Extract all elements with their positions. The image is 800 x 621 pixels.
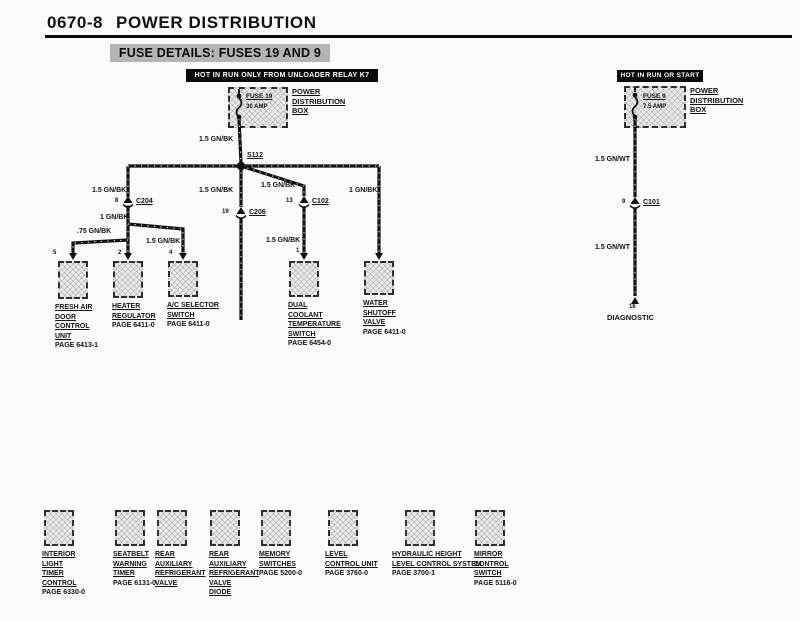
wire-label: 1.5 GN/WT (595, 156, 630, 164)
connector-label-c102: C102 (312, 198, 329, 206)
wire-label: .75 GN/BK (77, 228, 111, 236)
connector-pin-c206: 19 (222, 209, 229, 216)
rear-auxiliary-refrigerant-valve-diode-label: REARAUXILIARYREFRIGERANTVALVEDIODE (209, 550, 260, 598)
interior-light-timer-control-box (44, 510, 74, 546)
component-label-line: REAR (209, 550, 260, 560)
component-label-line: MIRROR (474, 550, 800, 560)
connector-pin-c102: 13 (286, 198, 293, 205)
wire-label: 1.5 GN/BK (261, 182, 295, 190)
wire-label: 1 GN/BK (349, 187, 377, 195)
wire-label: 1.5 GN/BK (266, 237, 300, 245)
rear-auxiliary-refrigerant-valve-label: REARAUXILIARYREFRIGERANTVALVE (155, 550, 206, 588)
component-label-line: REFRIGERANT (209, 569, 260, 579)
dual-coolant-temperature-switch-box (289, 261, 319, 297)
connector-label-c101: C101 (643, 199, 660, 207)
heater-regulator-box (113, 261, 143, 298)
wire-label: 1 GN/BK (100, 214, 128, 222)
component-label-line: SWITCH (474, 569, 800, 579)
component-label-line: SHUTOFF (363, 309, 800, 319)
wire-label: 1.5 GN/WT (595, 244, 630, 252)
component-label-line: AUXILIARY (155, 560, 206, 570)
rear-auxiliary-refrigerant-valve-diode-box (210, 510, 240, 546)
pin-number: 2 (118, 250, 121, 257)
pin-number: 4 (169, 250, 172, 257)
junction-label-s112: S112 (247, 152, 263, 160)
component-label-line: CONTROL (474, 560, 800, 570)
wire-label: 1.5 GN/BK (199, 136, 233, 144)
component-label-line: VALVE (363, 318, 800, 328)
wiring-diagram-page: 0670-8 POWER DISTRIBUTION FUSE DETAILS: … (0, 0, 800, 621)
hydraulic-height-level-control-system-box (405, 510, 435, 546)
connector-label-c206: C206 (249, 209, 266, 217)
component-label-line: AUXILIARY (209, 560, 260, 570)
mirror-control-switch-label: MIRRORCONTROLSWITCHPAGE 5116-0 (474, 550, 800, 621)
component-label-line: VALVE (155, 579, 206, 589)
seatbelt-warning-timer-box (115, 510, 145, 546)
connector-pin-c101: 9 (622, 199, 625, 206)
wire-label: 1.5 GN/BK (199, 187, 233, 195)
ac-selector-switch-box (168, 261, 198, 297)
component-label-line: REAR (155, 550, 206, 560)
pin-number: 1 (296, 248, 299, 255)
fresh-air-door-control-unit-box (58, 261, 88, 299)
water-shutoff-valve-box (364, 261, 394, 295)
generated-labels-layer: 1.5 GN/BK1.5 GN/BK1 GN/BK.75 GN/BK1.5 GN… (0, 0, 800, 621)
component-label-line: REFRIGERANT (155, 569, 206, 579)
component-label-line: VALVE (209, 579, 260, 589)
wire-label: 1.5 GN/BK (92, 187, 126, 195)
pin-number: 5 (53, 250, 56, 257)
rear-auxiliary-refrigerant-valve-box (157, 510, 187, 546)
mirror-control-switch-box (475, 510, 505, 546)
component-label-line: WATER (363, 299, 800, 309)
wire-label: 1.5 GN/BK (146, 238, 180, 246)
component-label-line: DIODE (209, 588, 260, 598)
memory-switches-box (261, 510, 291, 546)
level-control-unit-box (328, 510, 358, 546)
connector-label-c204: C204 (136, 198, 153, 206)
connector-pin-c204: 8 (115, 198, 118, 205)
component-page-ref: PAGE 5116-0 (474, 579, 800, 621)
